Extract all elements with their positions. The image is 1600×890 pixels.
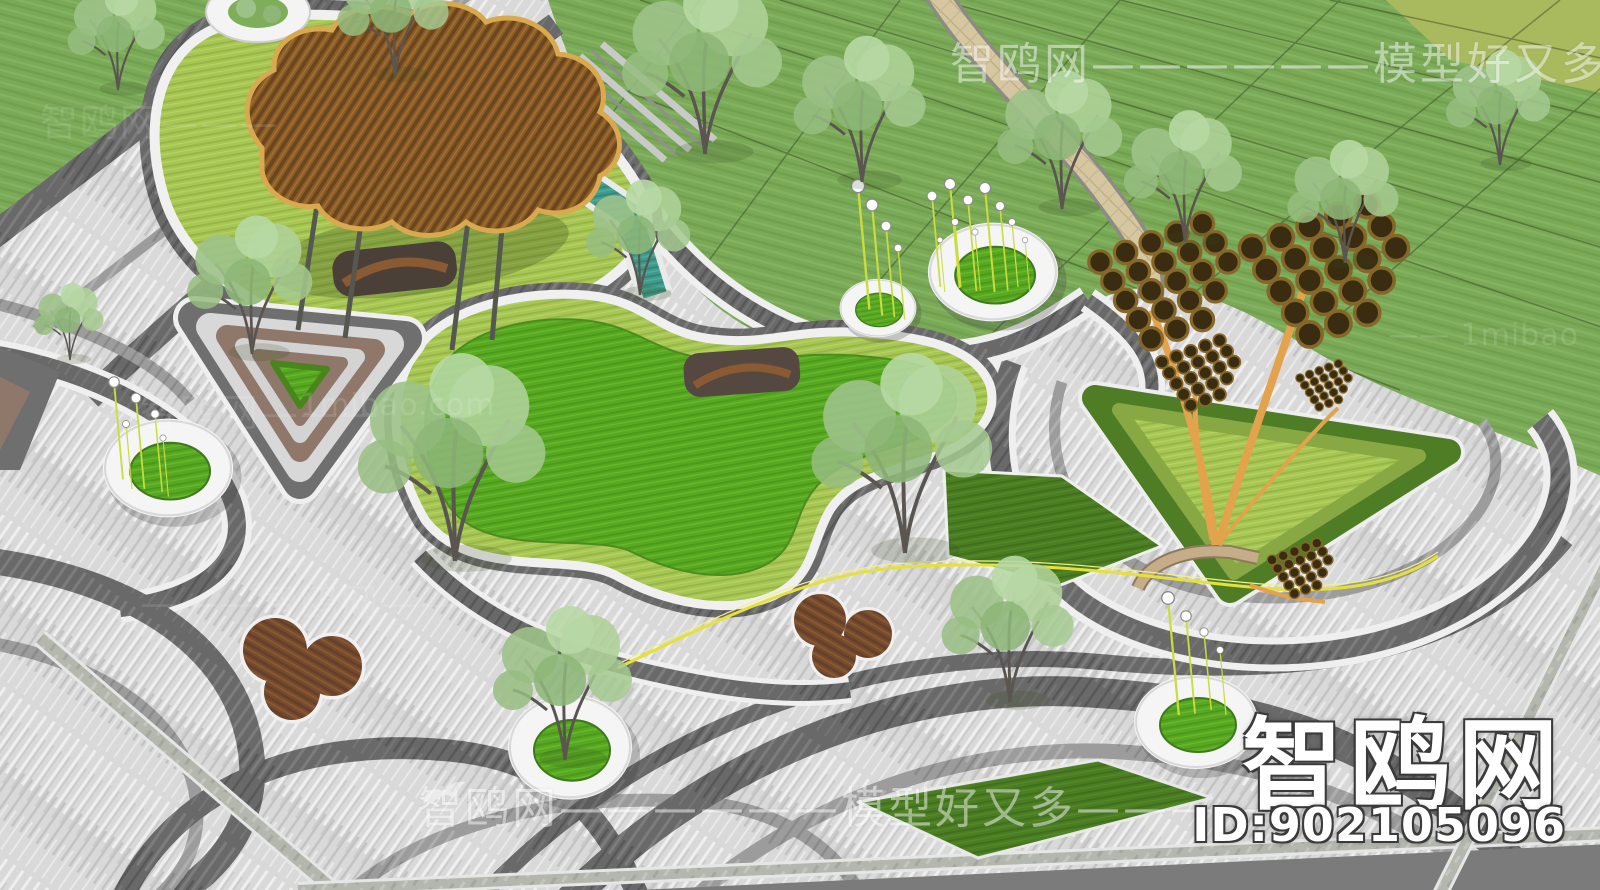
sunken-bench <box>682 346 801 398</box>
model-preview-page: 智鸥网——— —智鸥网——— ———智鸥网—— 1mibao.com —— 1m… <box>0 0 1600 890</box>
park-plaza-3d-render <box>0 0 1600 890</box>
